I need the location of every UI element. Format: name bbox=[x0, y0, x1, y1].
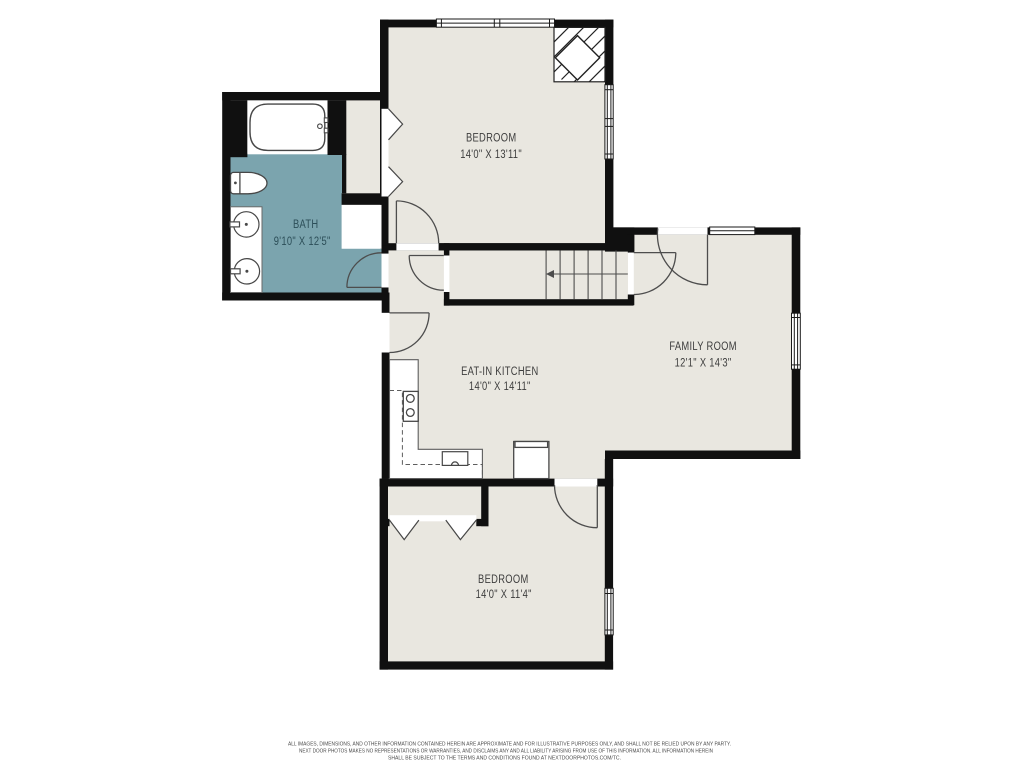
svg-text:EAT-IN KITCHEN: EAT-IN KITCHEN bbox=[461, 365, 538, 378]
svg-text:14'0" X 13'11": 14'0" X 13'11" bbox=[460, 148, 522, 161]
svg-text:BATH: BATH bbox=[293, 218, 318, 231]
svg-text:9'10" X 12'5": 9'10" X 12'5" bbox=[274, 235, 331, 248]
svg-text:BEDROOM: BEDROOM bbox=[478, 573, 529, 586]
svg-text:12'1" X 14'3": 12'1" X 14'3" bbox=[675, 356, 732, 369]
svg-text:FAMILY ROOM: FAMILY ROOM bbox=[669, 340, 737, 353]
svg-text:14'0" X 11'4": 14'0" X 11'4" bbox=[476, 588, 532, 601]
svg-text:14'0" X 14'11": 14'0" X 14'11" bbox=[469, 380, 531, 393]
svg-text:NEXT DOOR PHOTOS MAKES NO REPR: NEXT DOOR PHOTOS MAKES NO REPRESENTATION… bbox=[299, 749, 713, 755]
svg-text:SHALL BE SUBJECT TO THE TERMS: SHALL BE SUBJECT TO THE TERMS AND CONDIT… bbox=[388, 756, 621, 762]
svg-text:BEDROOM: BEDROOM bbox=[466, 131, 517, 144]
svg-text:ALL IMAGES, DIMENSIONS, AND OT: ALL IMAGES, DIMENSIONS, AND OTHER INFORM… bbox=[288, 741, 731, 747]
